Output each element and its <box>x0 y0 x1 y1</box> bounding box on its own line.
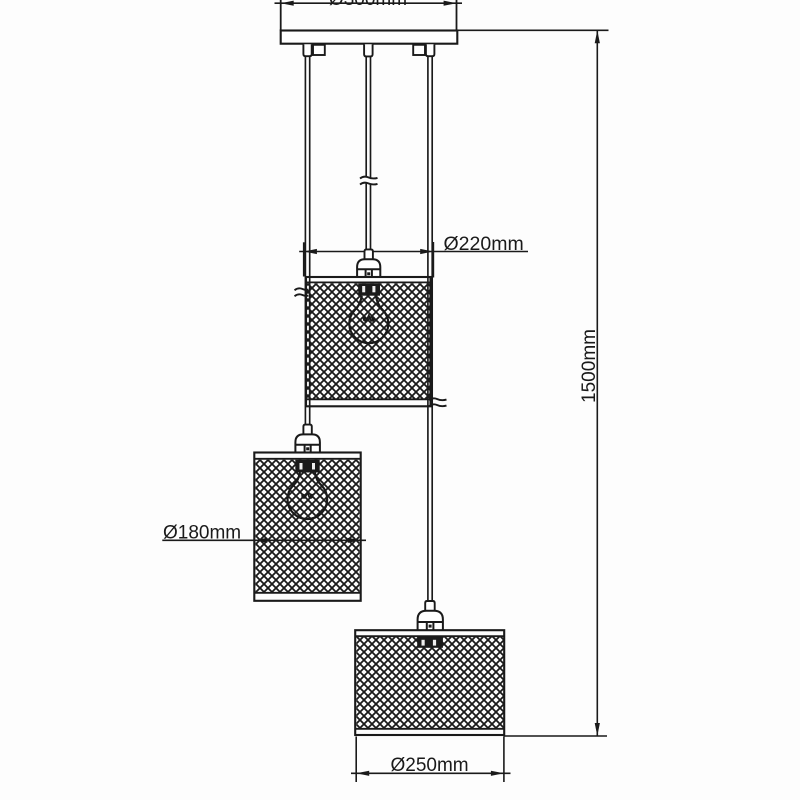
svg-text:Ø300mm: Ø300mm <box>329 0 407 10</box>
svg-text:Ø180mm: Ø180mm <box>163 523 241 544</box>
svg-text:Ø250mm: Ø250mm <box>391 755 469 776</box>
svg-text:Ø220mm: Ø220mm <box>444 233 524 255</box>
svg-text:1500mm: 1500mm <box>579 329 600 403</box>
